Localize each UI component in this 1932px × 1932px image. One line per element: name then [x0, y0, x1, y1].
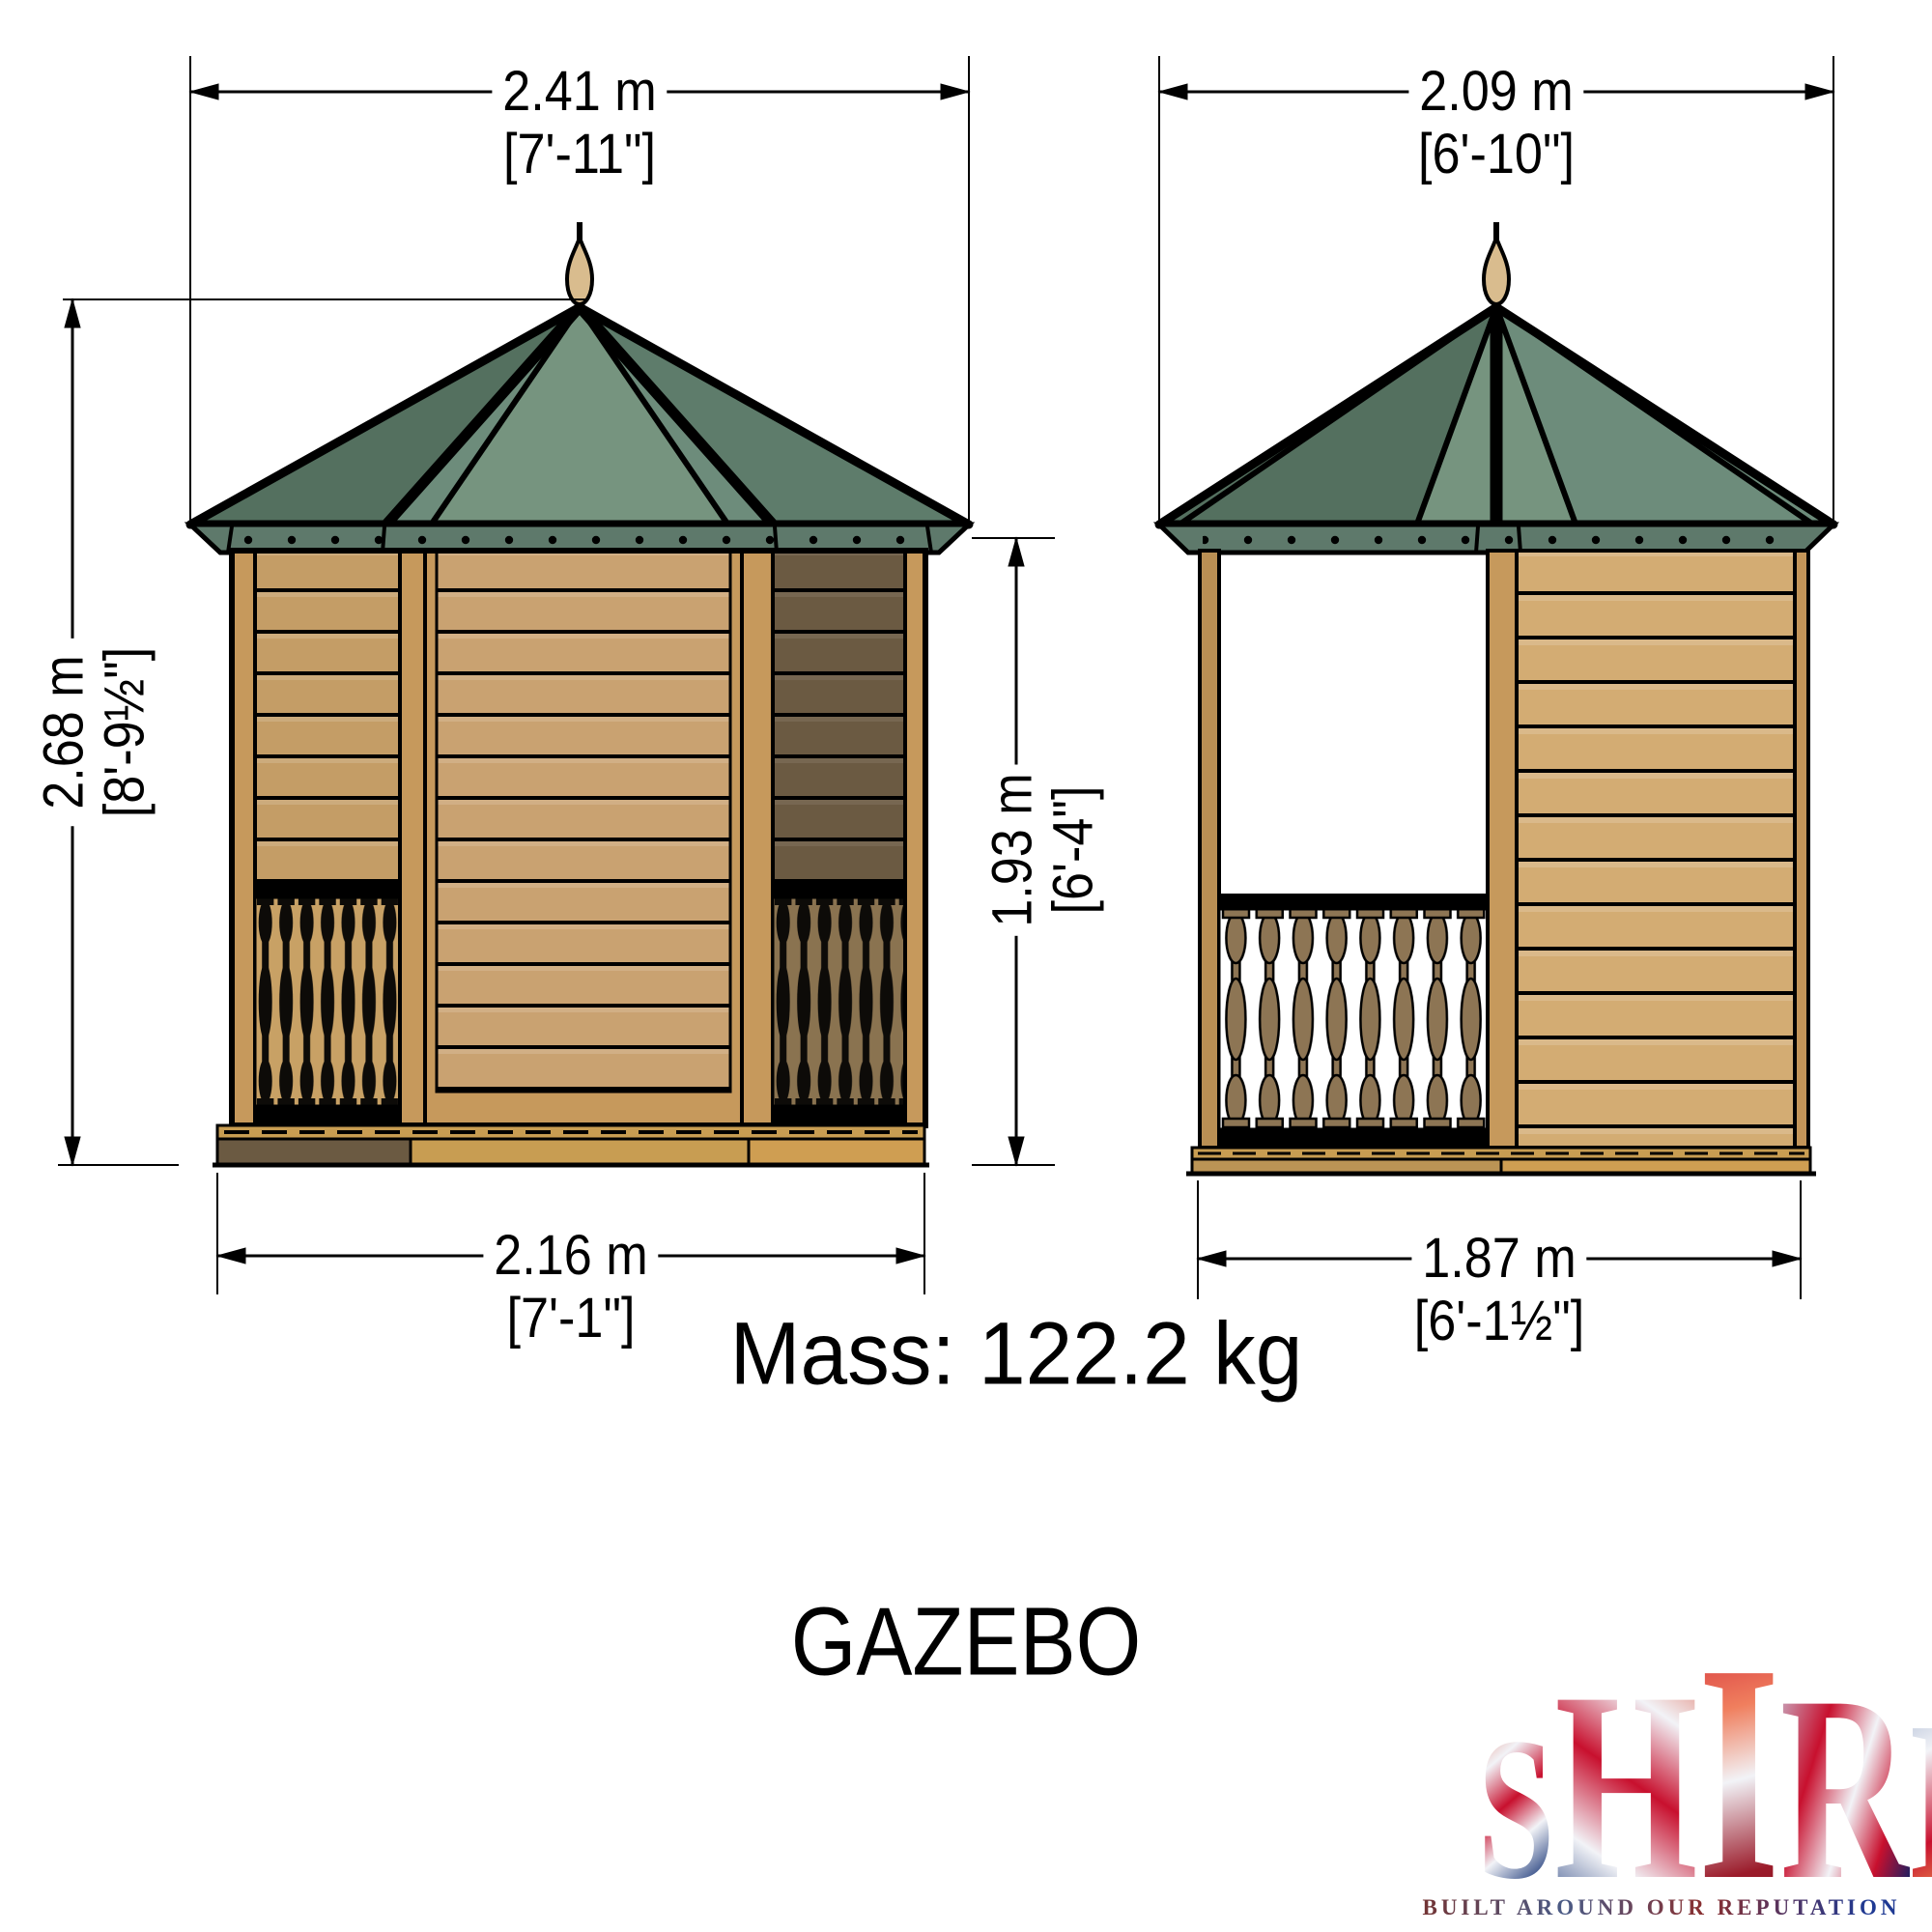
- side-walls: [1200, 551, 1808, 1148]
- center-clad-panel: [437, 551, 730, 1092]
- front-walls: [232, 551, 925, 1125]
- dim-side-roof-width-metric: 2.09 m: [1408, 64, 1583, 120]
- mass-label: Mass: 122.2 kg: [730, 1304, 1303, 1406]
- dim-front-base-width-metric: 2.16 m: [483, 1228, 658, 1284]
- logo-tagline: BUILT AROUND OUR REPUTATION: [1391, 1895, 1932, 1920]
- post: [742, 551, 773, 1125]
- page-title: GAZEBO: [791, 1587, 1142, 1698]
- dim-front-roof-width-metric: 2.41 m: [492, 64, 667, 120]
- side-roof: [1159, 222, 1833, 553]
- dim-front-base-width-imperial: [7'-1"]: [497, 1291, 646, 1347]
- fascia-screws: [1203, 527, 1792, 551]
- right-balustrade: [773, 897, 905, 1106]
- dim-side-base-width-imperial: [6'-1½"]: [1404, 1293, 1595, 1350]
- logo-letter: E: [1910, 1675, 1932, 1926]
- dim-eaves-height-metric: 1.93 m: [982, 773, 1043, 927]
- left-clad-panel: [255, 551, 400, 884]
- logo-letter: I: [1698, 1600, 1780, 1932]
- dim-side-base-width-metric: 1.87 m: [1411, 1231, 1586, 1287]
- right-clad-panel: [773, 551, 905, 884]
- side-balustrade: [1219, 909, 1488, 1129]
- dim-overall-height: 2.68 m [8'-9½"]: [28, 639, 160, 826]
- front-elevation: [190, 222, 969, 1165]
- dim-side-roof-width-imperial: [6'-10"]: [1407, 127, 1585, 183]
- fascia-screws: [232, 527, 927, 551]
- front-base: [213, 1125, 929, 1165]
- side-elevation: [1159, 222, 1833, 1174]
- side-base: [1186, 1148, 1816, 1174]
- dim-eaves-height-imperial: [6'-4"]: [1043, 773, 1104, 927]
- corner-post: [1200, 551, 1219, 1148]
- post: [400, 551, 425, 1125]
- logo-letter: R: [1780, 1642, 1911, 1932]
- logo-letter: H: [1554, 1635, 1697, 1932]
- corner-post: [1795, 551, 1808, 1148]
- side-clad-panel: [1517, 551, 1795, 1148]
- corner-post: [905, 551, 925, 1125]
- left-balustrade: [255, 897, 400, 1106]
- shire-logo: SHIRE: [1478, 1654, 1846, 1932]
- front-roof: [190, 222, 969, 553]
- dim-overall-height-imperial: [8'-9½"]: [95, 647, 156, 817]
- corner-post: [232, 551, 255, 1125]
- post: [1488, 551, 1517, 1148]
- dim-overall-height-metric: 2.68 m: [34, 647, 95, 817]
- logo-letter: S: [1478, 1695, 1555, 1921]
- dimension-sheet: 2.41 m [7'-11"] 2.09 m [6'-10"] 2.68 m […: [0, 0, 1932, 1932]
- dim-eaves-height: 1.93 m [6'-4"]: [977, 764, 1109, 936]
- dim-front-roof-width-imperial: [7'-11"]: [493, 127, 667, 183]
